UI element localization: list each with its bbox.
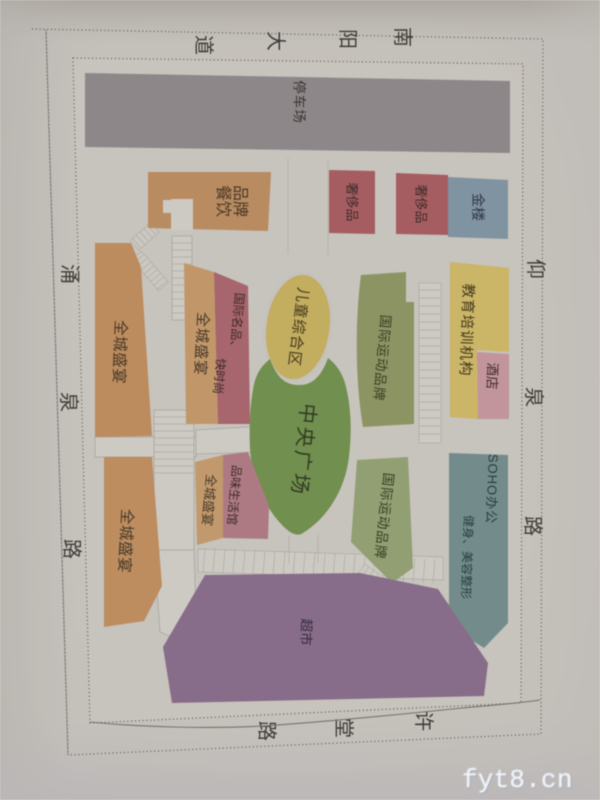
svg-text:泉: 泉 [522, 387, 545, 407]
svg-text:奢侈品: 奢侈品 [414, 184, 429, 223]
svg-text:大: 大 [264, 31, 287, 51]
svg-text:许: 许 [412, 711, 435, 731]
svg-text:金楼: 金楼 [470, 193, 486, 221]
svg-text:教育培训机构: 教育培训机构 [456, 283, 476, 377]
svg-text:SOHO办公: SOHO办公 [483, 454, 500, 525]
svg-text:酒店: 酒店 [484, 362, 500, 390]
svg-text:道: 道 [192, 35, 215, 55]
svg-text:超市: 超市 [298, 618, 315, 646]
svg-text:涌: 涌 [58, 264, 81, 284]
svg-text:阳: 阳 [336, 29, 359, 49]
svg-text:fyt8.cn: fyt8.cn [462, 765, 573, 795]
svg-text:泉: 泉 [57, 392, 80, 412]
svg-text:全城盛宴: 全城盛宴 [191, 312, 212, 377]
svg-text:健身、美容整形: 健身、美容整形 [459, 515, 477, 599]
svg-text:奢侈品: 奢侈品 [345, 182, 360, 221]
svg-text:路: 路 [255, 721, 278, 741]
svg-text:南: 南 [391, 27, 414, 47]
svg-text:路: 路 [60, 539, 83, 559]
svg-text:品牌餐饮: 品牌餐饮 [214, 185, 249, 217]
svg-text:停车场: 停车场 [292, 80, 308, 124]
svg-text:路: 路 [521, 516, 544, 536]
svg-text:全城盛宴: 全城盛宴 [109, 320, 129, 385]
svg-text:仰: 仰 [524, 259, 547, 279]
svg-text:堂: 堂 [332, 718, 355, 738]
svg-text:全城盛宴: 全城盛宴 [115, 509, 136, 574]
